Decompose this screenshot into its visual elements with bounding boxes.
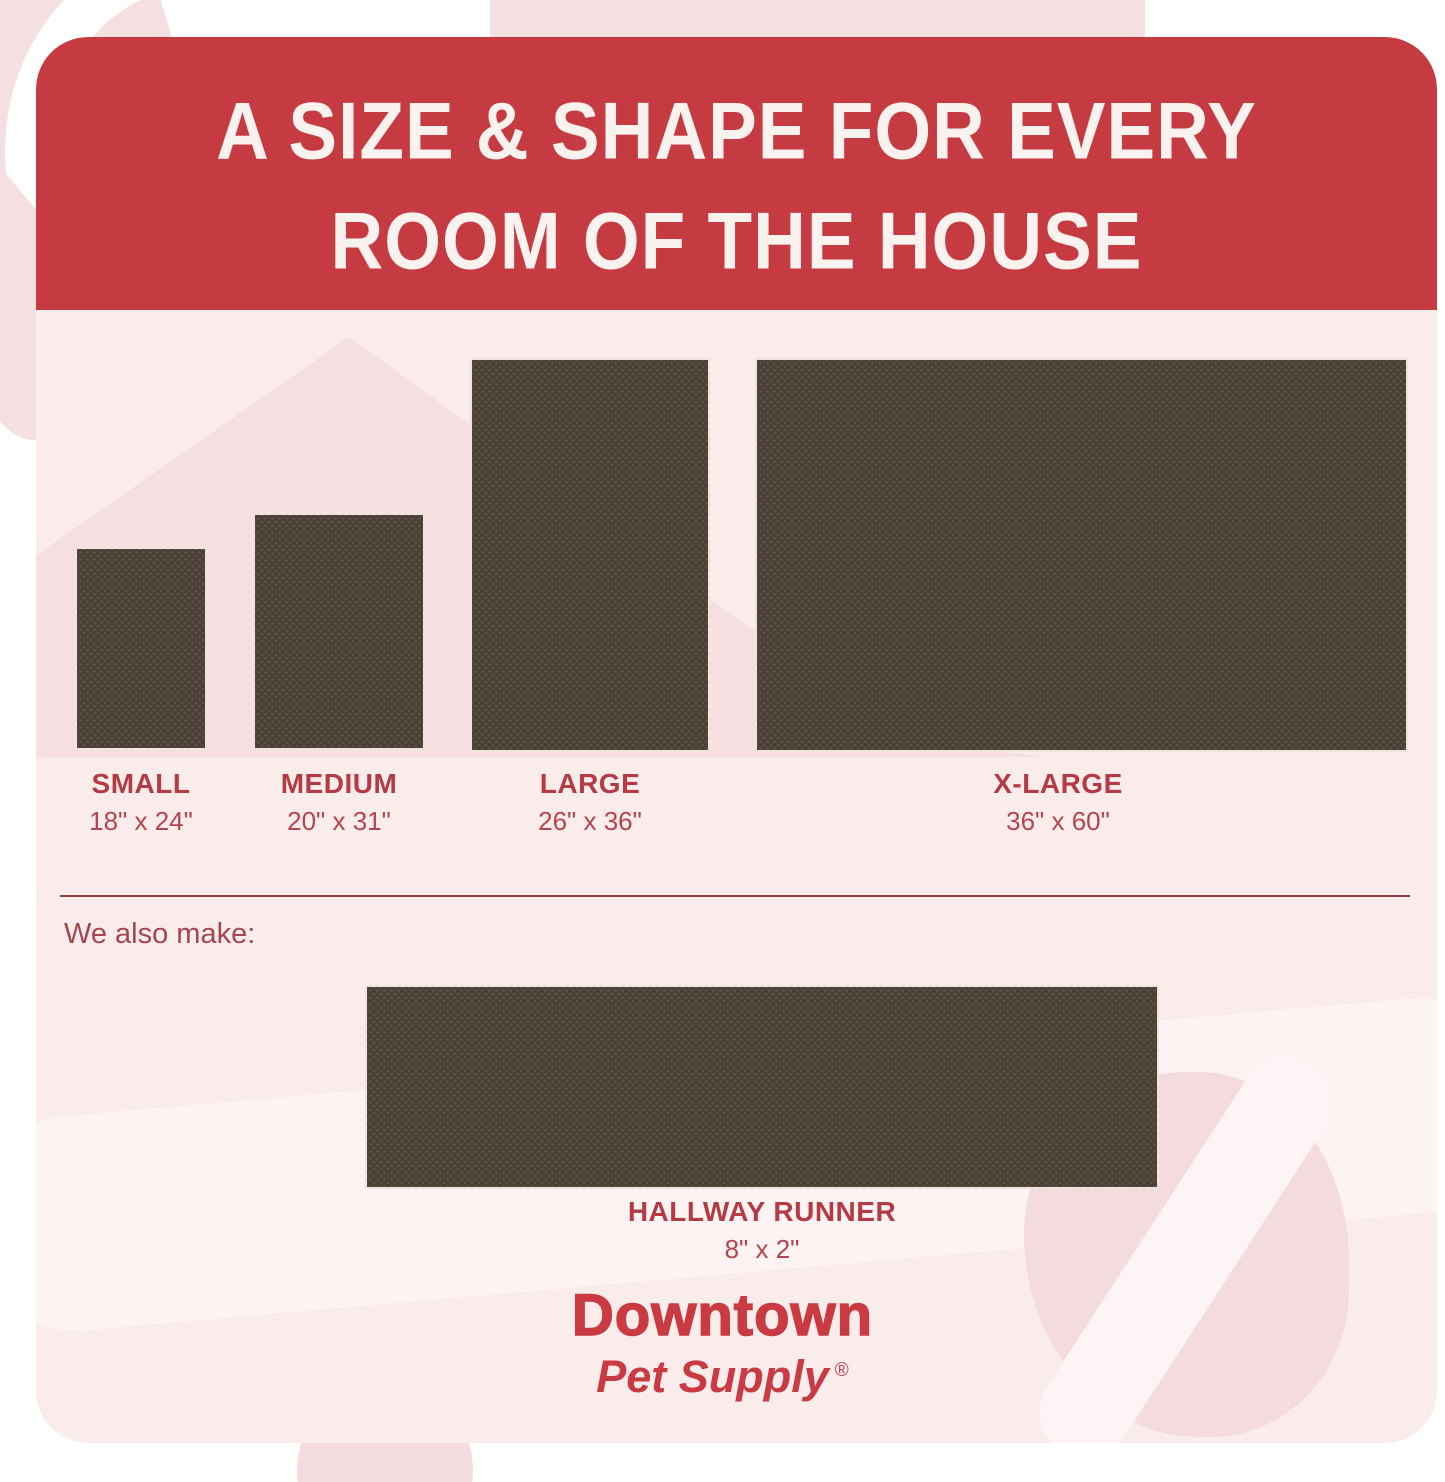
runner-label: HALLWAY RUNNER <box>562 1196 962 1228</box>
mat-xlarge <box>755 358 1408 752</box>
also-make-text: We also make: <box>64 918 255 951</box>
mat-large <box>470 358 710 752</box>
brand-tagline: Pet Supply® <box>0 1351 1445 1403</box>
brand-tagline-text: Pet Supply <box>596 1351 829 1402</box>
mat-small <box>75 547 207 750</box>
size-label-large: LARGE <box>460 768 720 800</box>
section-divider <box>60 895 1410 897</box>
runner-dimensions: 8" x 2" <box>562 1234 962 1265</box>
size-dimensions-large: 26" x 36" <box>460 806 720 837</box>
content-layer: SMALL 18" x 24" MEDIUM 20" x 31" LARGE 2… <box>0 0 1445 1482</box>
size-dimensions-medium: 20" x 31" <box>209 806 469 837</box>
brand-logo: Downtown Pet Supply® <box>0 1282 1445 1403</box>
brand-name: Downtown <box>0 1282 1445 1349</box>
mat-medium <box>253 513 425 750</box>
infographic-page: A SIZE & SHAPE FOR EVERY ROOM OF THE HOU… <box>0 0 1445 1482</box>
size-label-medium: MEDIUM <box>209 768 469 800</box>
size-label-xlarge: X-LARGE <box>928 768 1188 800</box>
registered-mark: ® <box>835 1360 849 1381</box>
mat-hallway-runner <box>365 985 1159 1189</box>
size-dimensions-xlarge: 36" x 60" <box>928 806 1188 837</box>
